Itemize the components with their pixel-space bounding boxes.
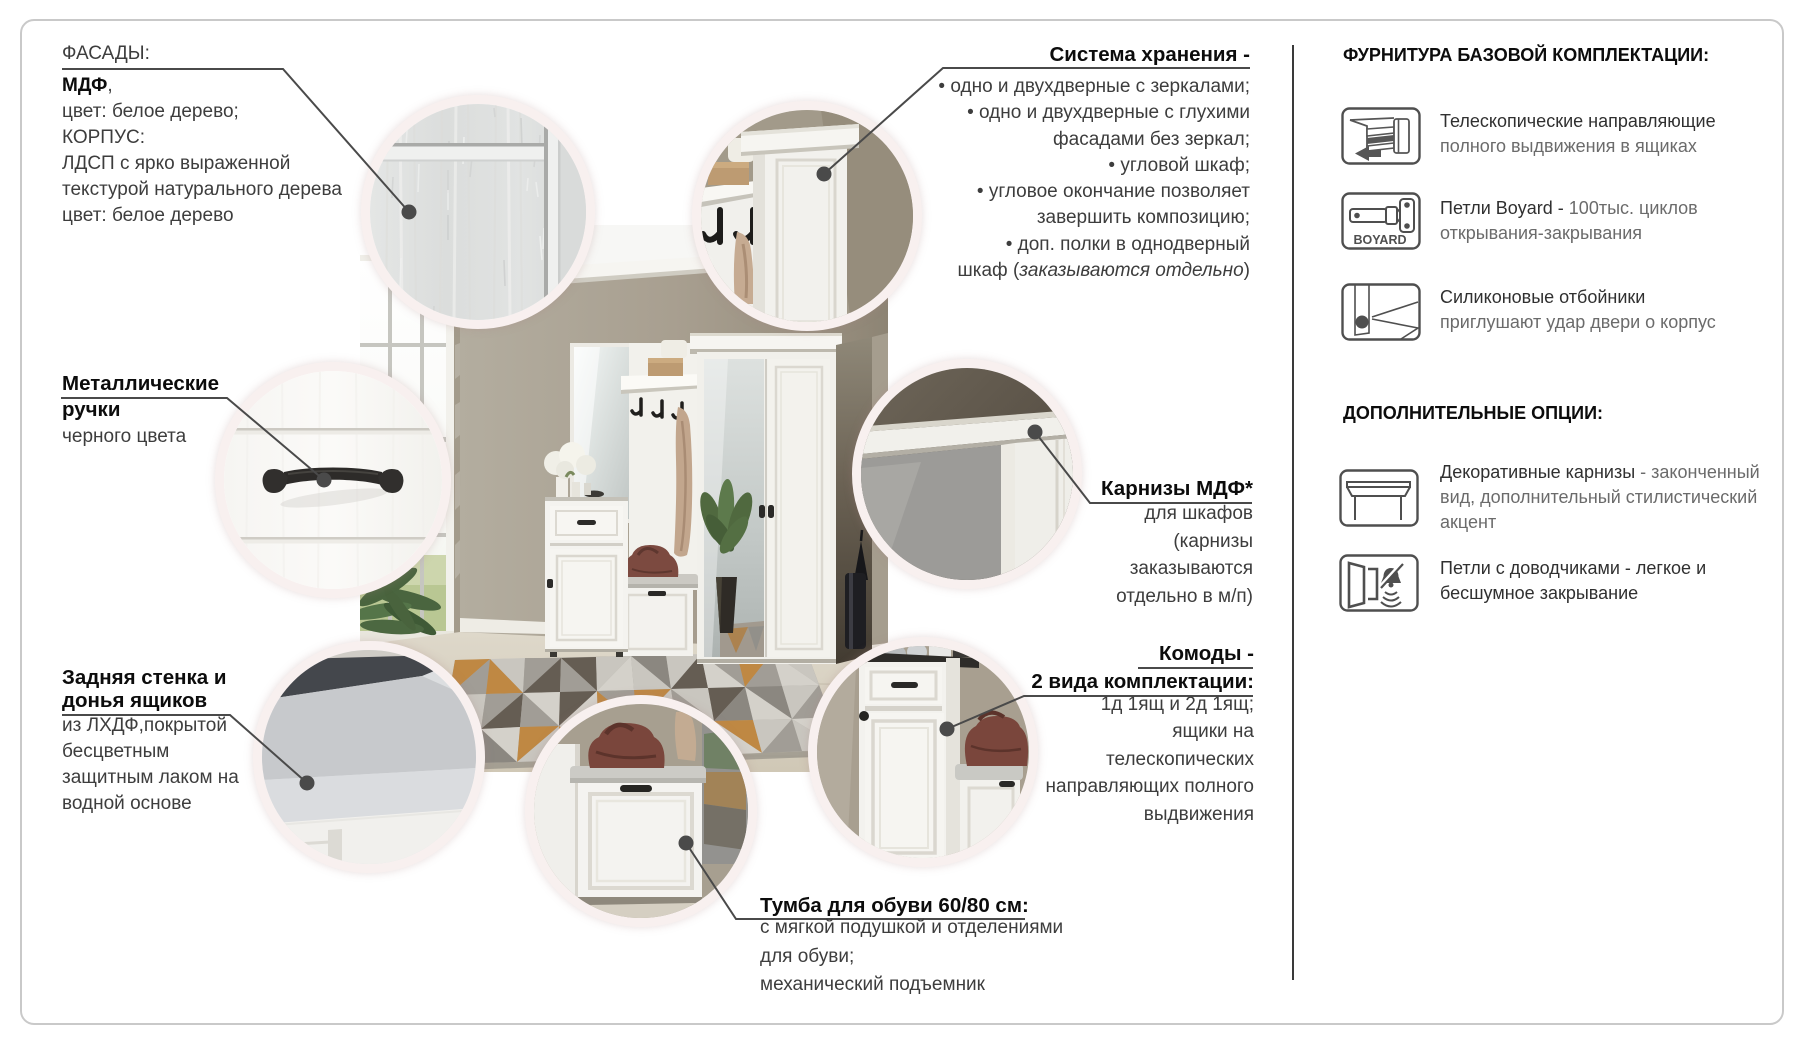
svg-text:BOYARD: BOYARD — [1353, 233, 1406, 247]
